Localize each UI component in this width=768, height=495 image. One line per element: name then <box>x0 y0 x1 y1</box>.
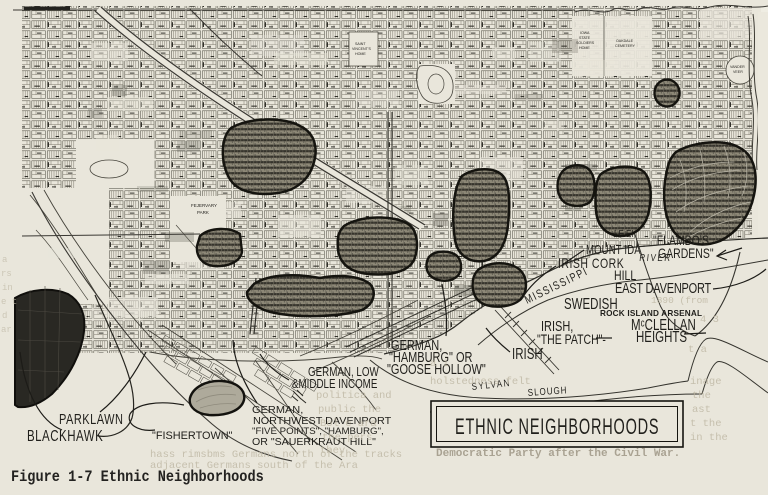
svg-text:ETHNIC NEIGHBORHOODS: ETHNIC NEIGHBORHOODS <box>455 414 659 439</box>
svg-text:"THE PATCH"-: "THE PATCH"- <box>537 331 606 347</box>
svg-text:Bol e ara: Bol e ara <box>320 418 377 430</box>
svg-text:t the: t the <box>690 418 722 430</box>
svg-text:VINCENT'S: VINCENT'S <box>352 47 371 51</box>
svg-text:OAKDALE: OAKDALE <box>616 39 634 43</box>
svg-text:SOLDIERS: SOLDIERS <box>576 41 595 45</box>
svg-text:inage: inage <box>690 376 722 388</box>
svg-text:the: the <box>692 390 711 402</box>
svg-text:1890 (from: 1890 (from <box>651 295 708 306</box>
svg-text:STATE: STATE <box>579 36 591 40</box>
svg-text:in: in <box>2 283 13 293</box>
svg-text:ar: ar <box>1 325 12 335</box>
svg-text:the pers: the pers <box>322 432 372 444</box>
svg-text:"FISHERTOWN": "FISHERTOWN" <box>152 430 233 442</box>
svg-text:adjacent Germans south of the: adjacent Germans south of the Ara <box>150 460 358 472</box>
svg-text:EAST DAVENPORT: EAST DAVENPORT <box>615 279 711 296</box>
svg-text:PARK: PARK <box>197 210 209 215</box>
svg-text:IRISH: IRISH <box>512 345 543 362</box>
svg-text:FEJERVARY: FEJERVARY <box>191 203 217 208</box>
svg-text:politica and: politica and <box>316 390 392 402</box>
svg-text:CEMETERY: CEMETERY <box>615 44 636 48</box>
svg-text:PARKLAWN: PARKLAWN <box>59 410 123 427</box>
svg-text:holstedness felt: holstedness felt <box>430 376 531 388</box>
svg-text:in the: in the <box>690 432 728 444</box>
svg-text:BLACKHAWK: BLACKHAWK <box>27 427 103 444</box>
svg-text:HOME: HOME <box>355 52 366 56</box>
svg-text:rs: rs <box>1 269 12 279</box>
svg-text:Democratic Party after the Civ: Democratic Party after the Civil War. <box>436 448 680 460</box>
svg-text:a: a <box>2 255 8 265</box>
svg-text:a i: a i <box>430 358 449 370</box>
svg-text:public the: public the <box>318 404 381 416</box>
svg-text:IOWA: IOWA <box>580 31 590 35</box>
svg-text:SAINT: SAINT <box>355 42 366 46</box>
svg-text:4 3: 4 3 <box>700 314 719 326</box>
svg-text:GERMAN,: GERMAN, <box>252 404 303 416</box>
svg-text:d: d <box>2 311 7 321</box>
svg-text:VEER: VEER <box>733 70 743 74</box>
svg-text:t a: t a <box>688 344 707 356</box>
svg-text:HOME: HOME <box>579 46 590 50</box>
svg-text:e t: e t <box>1 297 17 307</box>
svg-text:VANDER: VANDER <box>730 65 745 69</box>
svg-text:LE EI: LE EI <box>614 228 634 239</box>
svg-text:HEIGHTS: HEIGHTS <box>636 328 687 345</box>
svg-text:ast: ast <box>692 404 711 416</box>
svg-text:RIVER: RIVER <box>639 252 673 263</box>
